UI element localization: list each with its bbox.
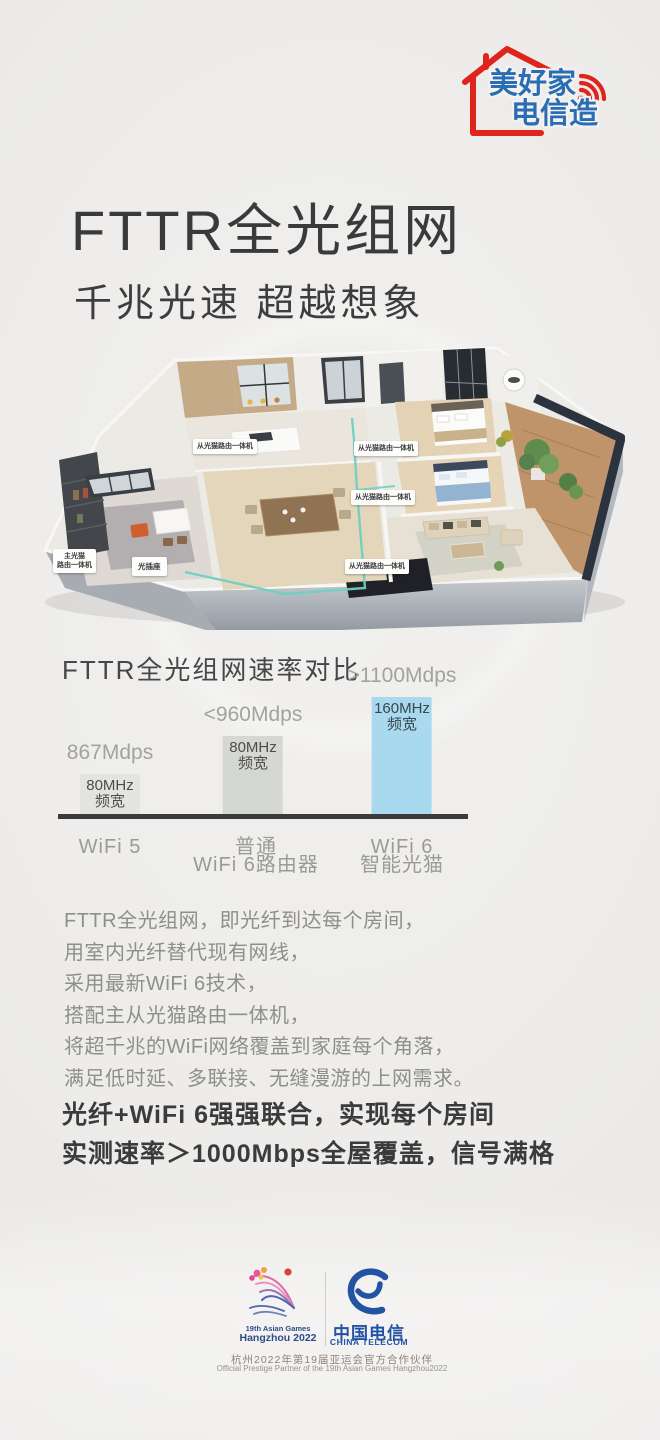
chart-baseline xyxy=(58,814,468,819)
asian-games-text-city: Hangzhou 2022 xyxy=(239,1332,316,1344)
brand-text-line1: 美好家 xyxy=(489,70,576,99)
description-line: 采用最新WiFi 6技术， xyxy=(64,969,474,1001)
category-wifi6-ont: WiFi 6 智能光猫 xyxy=(360,838,444,874)
bar-value-label: 867Mdps xyxy=(67,741,153,765)
bar-bandwidth-label: 80MHz 频宽 xyxy=(86,774,134,814)
floorplan-label-master-ont: 主光猫 路由一体机 xyxy=(53,549,96,573)
description-line: 用室内光纤替代现有网线， xyxy=(64,938,474,970)
footer: 19th Asian Games Hangzhou 2022 中国电信 CHIN… xyxy=(0,1258,660,1388)
page-title: FTTR全光组网 xyxy=(71,186,462,267)
speed-comparison-chart: FTTR全光组网速率对比 867Mdps 80MHz 频宽 <960Mdps 8… xyxy=(0,648,660,888)
bar-value-label: >1100Mdps xyxy=(348,664,457,688)
bar-bandwidth-label: 80MHz 频宽 xyxy=(229,736,277,814)
poster-page: 美好家 电信造 FTTR全光组网 千兆光速 超越想象 xyxy=(0,0,660,1440)
chart-title: FTTR全光组网速率对比 xyxy=(62,650,360,687)
floorplan-label-slave-ont-bedroom2: 从光猫路由一体机 xyxy=(351,490,415,505)
bar-group-wifi5: 867Mdps 80MHz 频宽 xyxy=(67,741,153,814)
floorplan-label-slave-ont-bedroom1: 从光猫路由一体机 xyxy=(354,441,418,456)
floorplan-label-slave-ont-kitchen: 从光猫路由一体机 xyxy=(193,439,257,454)
page-subtitle: 千兆光速 超越想象 xyxy=(74,272,425,327)
floorplan-label-fiber-socket: 光插座 xyxy=(132,557,167,576)
category-wifi6-router: 普通 WiFi 6路由器 xyxy=(193,838,319,874)
bar-wifi6-ont: 160MHz 频宽 xyxy=(372,697,432,814)
partner-text-en: Official Prestige Partner of the 19th As… xyxy=(217,1364,448,1373)
brand-logo: 美好家 电信造 xyxy=(462,42,650,144)
bar-group-wifi6-router: <960Mdps 80MHz 频宽 xyxy=(204,703,303,814)
asian-games-emblem xyxy=(240,1264,316,1322)
floorplan-illustration xyxy=(35,340,625,630)
bar-bandwidth-label: 160MHz 频宽 xyxy=(374,697,430,814)
bar-wifi6-router: 80MHz 频宽 xyxy=(223,736,283,814)
description-line: 满足低时延、多联接、无缝漫游的上网需求。 xyxy=(64,1064,474,1096)
china-telecom-name-en: CHINA TELECOM xyxy=(330,1337,408,1347)
bar-value-label: <960Mdps xyxy=(204,703,303,727)
footer-divider xyxy=(325,1272,326,1346)
description-line: 搭配主从光猫路由一体机， xyxy=(64,1001,474,1033)
floorplan-label-slave-ont-livingroom: 从光猫路由一体机 xyxy=(345,559,409,574)
highlight-line1: 光纤+WiFi 6强强联合，实现每个房间 xyxy=(62,1096,555,1135)
description-line: 将超千兆的WiFi网络覆盖到家庭每个角落， xyxy=(64,1032,474,1064)
brand-text-line2: 电信造 xyxy=(511,100,598,129)
description-text: FTTR全光组网，即光纤到达每个房间， 用室内光纤替代现有网线， 采用最新WiF… xyxy=(64,906,474,1096)
description-line: FTTR全光组网，即光纤到达每个房间， xyxy=(64,906,474,938)
category-wifi5: WiFi 5 xyxy=(79,838,142,856)
bar-group-wifi6-ont: >1100Mdps 160MHz 频宽 xyxy=(348,664,457,814)
floorplan: 从光猫路由一体机 从光猫路由一体机 从光猫路由一体机 从光猫路由一体机 主光猫 … xyxy=(35,340,625,630)
china-telecom-logo xyxy=(344,1266,394,1320)
highlight-line2: 实测速率＞1000Mbps全屋覆盖，信号满格 xyxy=(62,1135,555,1174)
highlight-claim: 光纤+WiFi 6强强联合，实现每个房间 实测速率＞1000Mbps全屋覆盖，信… xyxy=(62,1096,555,1174)
bar-wifi5: 80MHz 频宽 xyxy=(80,774,140,814)
